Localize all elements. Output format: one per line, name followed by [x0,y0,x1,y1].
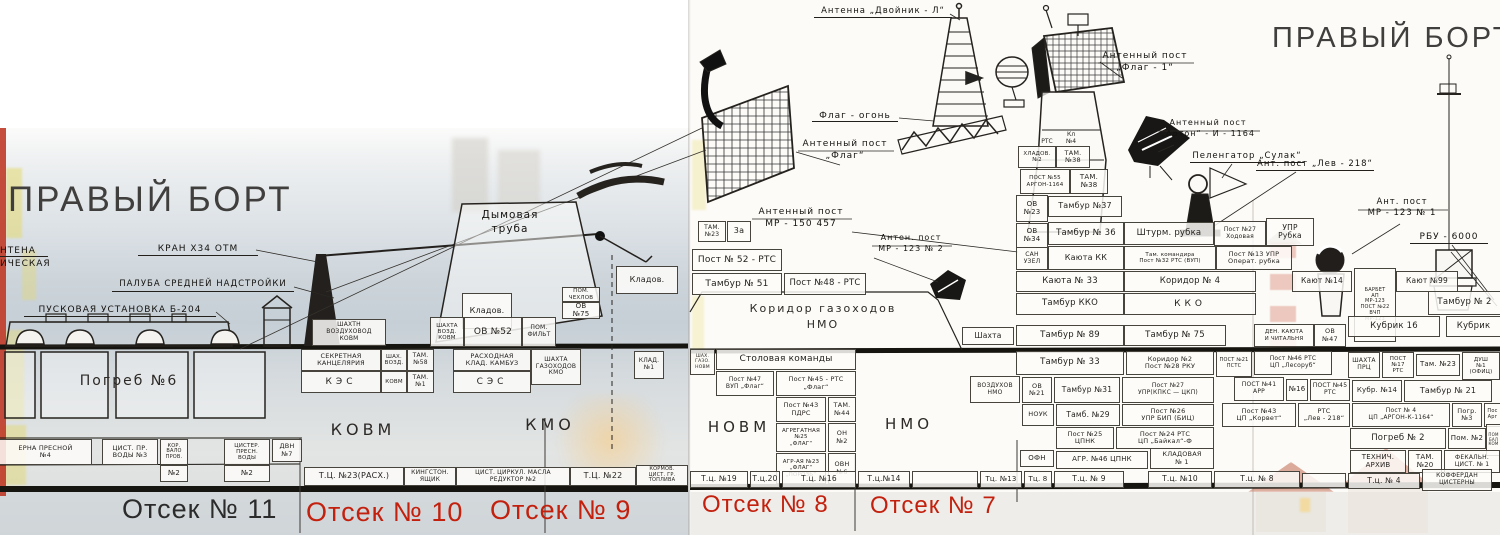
label-san-uzel: САН УЗЕЛ [1016,247,1048,270]
label-tambur21: Тамбур № 21 [1404,380,1492,402]
label-pogreb2: Погреб № 2 [1350,428,1446,449]
label-prc: ШАХТА ПРЦ [1348,352,1380,378]
label-post27x: Пост №27 Ходовая [1214,221,1266,246]
label-kran: КРАН Х34 ОТМ [138,243,258,256]
label-sekretnaya: СЕКРЕТНАЯ КАНЦЕЛЯРИЯ [301,349,381,371]
label-o9: Отсек № 9 [490,495,650,527]
label-post25: Пост №25 ЦПНК [1056,427,1114,449]
label-tc20: Т.ц.20 [750,471,780,488]
label-tam58: ТАМ. №58 [407,349,434,371]
label-ov21: ОВ №21 [1022,377,1052,403]
label-koridor2: Коридор №2 Пост №28 РКУ [1126,351,1214,375]
label-n16: №16 [1286,379,1308,401]
label-stolovaya: Столовая команды [716,349,856,370]
label-post43p: Пост №43 ПДРС [776,397,826,422]
label-tam38a: ТАМ. №38 [1056,146,1090,168]
label-kayuta-kk: Каюта КК [1048,246,1124,270]
label-tambur89: Тамбур № 89 [1016,325,1124,346]
label-cisterna4: ЕРНА ПРЕСНОЙ №4 [0,439,92,465]
label-kofferdan: КОФФЕРДАН ЦИСТЕРНЫ [1422,469,1492,491]
label-lev218: Ант. пост „Лев - 218“ [1256,159,1374,171]
label-post48: Пост №48 - РТС [784,273,866,295]
label-tc13: Тц. №13 [980,471,1022,488]
label-ant-flag1: Антенный пост „Флаг - 1“ [1096,50,1194,76]
label-paluba: ПАЛУБА СРЕДНЕЙ НАДСТРОЙКИ [112,279,294,292]
label-den-kayuta: ДЕН. КАЮТА И ЧИТАЛЬНЯ [1254,324,1314,347]
label-tambur75: Тамбур № 75 [1124,325,1226,346]
label-ant-flag: Антенный пост „Флаг“ [796,138,894,164]
label-kovm-small: КОВМ [381,371,407,393]
label-cist-cirkul: ЦИСТ. ЦИРКУЛ. МАСЛА РЕДУКТОР №2 [456,467,570,486]
label-agr46: АГР. №46 ЦПНК [1056,451,1148,469]
label-antenna-cut2: ИЧЕСКАЯ [0,258,64,270]
label-pogreb6: Погреб №6 [70,370,188,392]
label-ov75: ОВ №75 [562,302,600,319]
label-cell3a: 3а [727,221,751,242]
label-tam44: ТАМ. №44 [828,397,856,422]
label-ov23: ОВ №23 [1016,195,1048,222]
label-pusk: ПУСКОВАЯ УСТАНОВКА Б-204 [24,304,216,317]
label-tc19: Т.ц. №19 [690,471,748,488]
label-kayut99: Кают №99 [1396,271,1458,292]
label-pogr3: Погр. №3 [1452,403,1482,427]
label-tc22: Т.Ц. №22 [570,467,636,486]
label-shaxta: Шахта [962,327,1014,345]
label-kovm: КОВМ [316,418,410,442]
label-post55: ПОСТ №55 АРГОН-1164 [1020,169,1070,194]
label-post47: Пост №47 ВУП „Флаг“ [716,371,774,396]
label-kor-gaz: Коридор газоходов НМО [728,298,918,336]
label-tc14: Т.ц.№14 [858,471,910,488]
label-klad-n1: КЛАД. №1 [634,351,664,379]
label-left: ПРАВЫЙ БОРТ [8,180,276,220]
label-kubrik16: Кубрик 16 [1348,316,1440,337]
label-post26: Пост №26 УПР БИП (БИЦ) [1122,404,1214,426]
label-n2b: №2 [224,465,270,482]
lattice-flag-antenna-drawing [700,50,794,202]
label-sh-vozd-kovm: ШАХТН ВОЗДУХОВОД КОВМ [312,319,386,346]
label-sh-gazoxodov: ШАХТА ГАЗОХОДОВ КМО [531,349,581,385]
label-o11: Отсек № 11 [122,494,292,528]
label-pom-filt: ПОМ. ФИЛЬТ [522,317,556,347]
label-post45rtc: ПОСТ №45 РТС [1310,379,1350,401]
label-tc4: Т.ц. № 4 [1348,473,1420,489]
label-pom-chex: ПОМ. ЧЕХЛОВ [562,287,600,302]
label-nouk: НОУК [1022,404,1054,426]
label-o8: Отсек № 8 [702,491,832,519]
label-kor-valoprov: КОР. ВАЛО ПРОВ. [160,439,188,465]
label-rbu: РБУ - 6000 [1410,231,1488,244]
label-right: ПРАВЫЙ БОРТ [1272,22,1490,54]
label-post46les: Пост №46 РТС ЦП „Лесоруб“ [1254,351,1332,375]
label-kladovaya1: КЛАДОВАЯ № 1 [1150,448,1214,469]
label-nmo: НМО [872,413,946,435]
label-ant-arton: Антенный пост „Артон“ - И - 1164 [1156,118,1260,144]
label-tc23: Т.Ц. №23(РАСХ.) [304,467,404,486]
label-rasxodnaya: РАСХОДНАЯ КЛАД. КАМБУЗ [453,349,531,371]
label-o7: Отсек № 7 [870,492,1008,520]
label-tc16: Т.ц. №16 [782,471,856,488]
label-shax-vozd2: ШАХ. ВОЗД. [381,349,407,371]
label-vozduxov: ВОЗДУХОВ НМО [970,376,1020,403]
label-kayuta33: Каюта № 33 [1016,271,1124,292]
label-tambur36: Тамбур № 36 [1048,222,1124,245]
label-agreg25: АГРЕГАТНАЯ №25 „ФЛАГ“ [776,423,826,452]
label-dvoinik: Антенна „Двойник - Л“ [814,6,952,18]
label-post21pstc: ПОСТ №21 ПСТС [1216,351,1252,377]
label-tex-arhiv: ТЕХНИЧ. АРХИВ [1350,450,1406,473]
label-ov47: ОВ №47 [1314,324,1346,347]
label-kormov: КОРМОВ. ЦИСТ. ГР. ТОПЛИВА [636,465,688,486]
label-tambur33: Тамбур № 33 [1016,351,1124,375]
label-shax-gazo-novm: ШАХ. ГАЗО. НОВМ [690,349,715,375]
label-mr123-1: Ант. пост МР - 123 № 1 [1356,197,1448,223]
label-tc8a: Тц. 8 [1024,471,1052,488]
label-tambur2: Тамбур № 2 [1428,291,1500,315]
label-ov52: ОВ №52 [464,317,522,347]
label-post27u: Пост №27 УПР(КПКС — ЦКП) [1122,377,1214,403]
label-tamb29: Тамб. №29 [1056,404,1120,426]
label-upr-rubka: УПР Рубка [1266,218,1314,246]
label-post17: ПОСТ №17 РТС [1382,352,1414,378]
label-tam23b: Там. №23 [1416,354,1460,376]
label-tambur51: Тамбур № 51 [692,273,782,295]
label-dvn7: ДВН №7 [272,439,302,462]
label-tam1: ТАМ. №1 [407,371,434,393]
foremast-tower-drawing [898,4,1006,155]
label-post4argon: Пост № 4 ЦП „АРГОН-К-1164“ [1352,403,1450,427]
label-mr150: Антенный пост МР - 150 457 [750,206,852,232]
label-mr123-2: Антен. пост МР - 123 № 2 [870,233,952,257]
label-pom2: Пом. №2 [1448,428,1486,449]
mr123-2-device-drawing [930,270,966,300]
label-ses: СЭС [453,371,531,393]
label-tambur-kko: Тамбур ККО [1016,293,1124,315]
label-kayut14: Кают №14 [1292,271,1352,292]
label-empty2 [1302,473,1346,488]
label-on2: ОН №2 [828,423,856,452]
label-tambur37: Тамбур №37 [1048,196,1122,217]
label-klad-stack: Кладов. [616,266,678,294]
label-post24: Пост №24 РТС ЦП „Байкал“-Ф [1116,427,1214,449]
label-rtc-lev: РТС „Лев - 218“ [1298,403,1350,427]
label-post41arr: ПОСТ №41 АРР [1234,377,1284,401]
label-kko: ККО [1124,293,1256,315]
label-shaxta-vozd: ШАХТА ВОЗД. КОВМ [430,317,464,347]
label-xladov2: ХЛАДОВ. №2 [1018,146,1056,168]
label-shturm: Штурм. рубка [1124,222,1214,245]
label-tc8b: Т.ц. № 8 [1214,471,1300,488]
label-kes: КЭС [301,371,381,393]
label-tambur31: Тамбур №31 [1054,377,1120,403]
label-tc10: Т.ц. №10 [1148,471,1212,488]
label-empty1 [912,471,978,488]
label-koridor4: Коридор № 4 [1124,271,1256,292]
label-tam-komandira: Там. командира Пост №32 РТС (ВУП) [1124,246,1216,270]
label-o10: Отсек № 10 [306,497,464,529]
label-cist-pr3: ЦИСТ. ПР. ВОДЫ №3 [102,439,158,465]
label-kingston: КИНГСТОН. ЯЩИК [404,467,456,486]
label-post52: Пост № 52 - РТС [692,249,782,271]
label-n2a: №2 [160,465,188,482]
label-kmo: КМО [508,413,592,437]
label-post45: Пост №45 - РТС „Флаг“ [776,371,856,396]
label-tc9: Т.ц. № 9 [1054,471,1124,488]
label-flag-ogon: Флаг - огонь [812,110,898,122]
label-antenna-cut1: НТЕНА [0,245,48,257]
label-ov34: ОВ №34 [1016,223,1048,248]
label-kubrik: Кубрик [1446,316,1500,337]
label-kubr14: Кубр. №14 [1352,380,1402,402]
label-ofn: ОФН [1020,450,1054,467]
label-tam23a: ТАМ. №23 [698,221,726,242]
label-novm: НОВМ [698,416,780,438]
label-truba: Дымовая труба [468,208,552,238]
label-dush1: ДУШ №1 (ОФИЦ) [1462,352,1500,380]
label-post13: Пост №13 УПР Операт. рубка [1216,246,1292,270]
label-tam38b: ТАМ. №38 [1070,169,1108,194]
label-cister-presn: ЦИСТЕР. ПРЕСН. ВОДЫ [224,439,270,465]
label-post43korvet: Пост №43 ЦП „Корвет“ [1222,403,1296,427]
ship-deck-plan: ПРАВЫЙ БОРТПРАВЫЙ БОРТОтсек № 11Отсек № … [0,0,1500,535]
